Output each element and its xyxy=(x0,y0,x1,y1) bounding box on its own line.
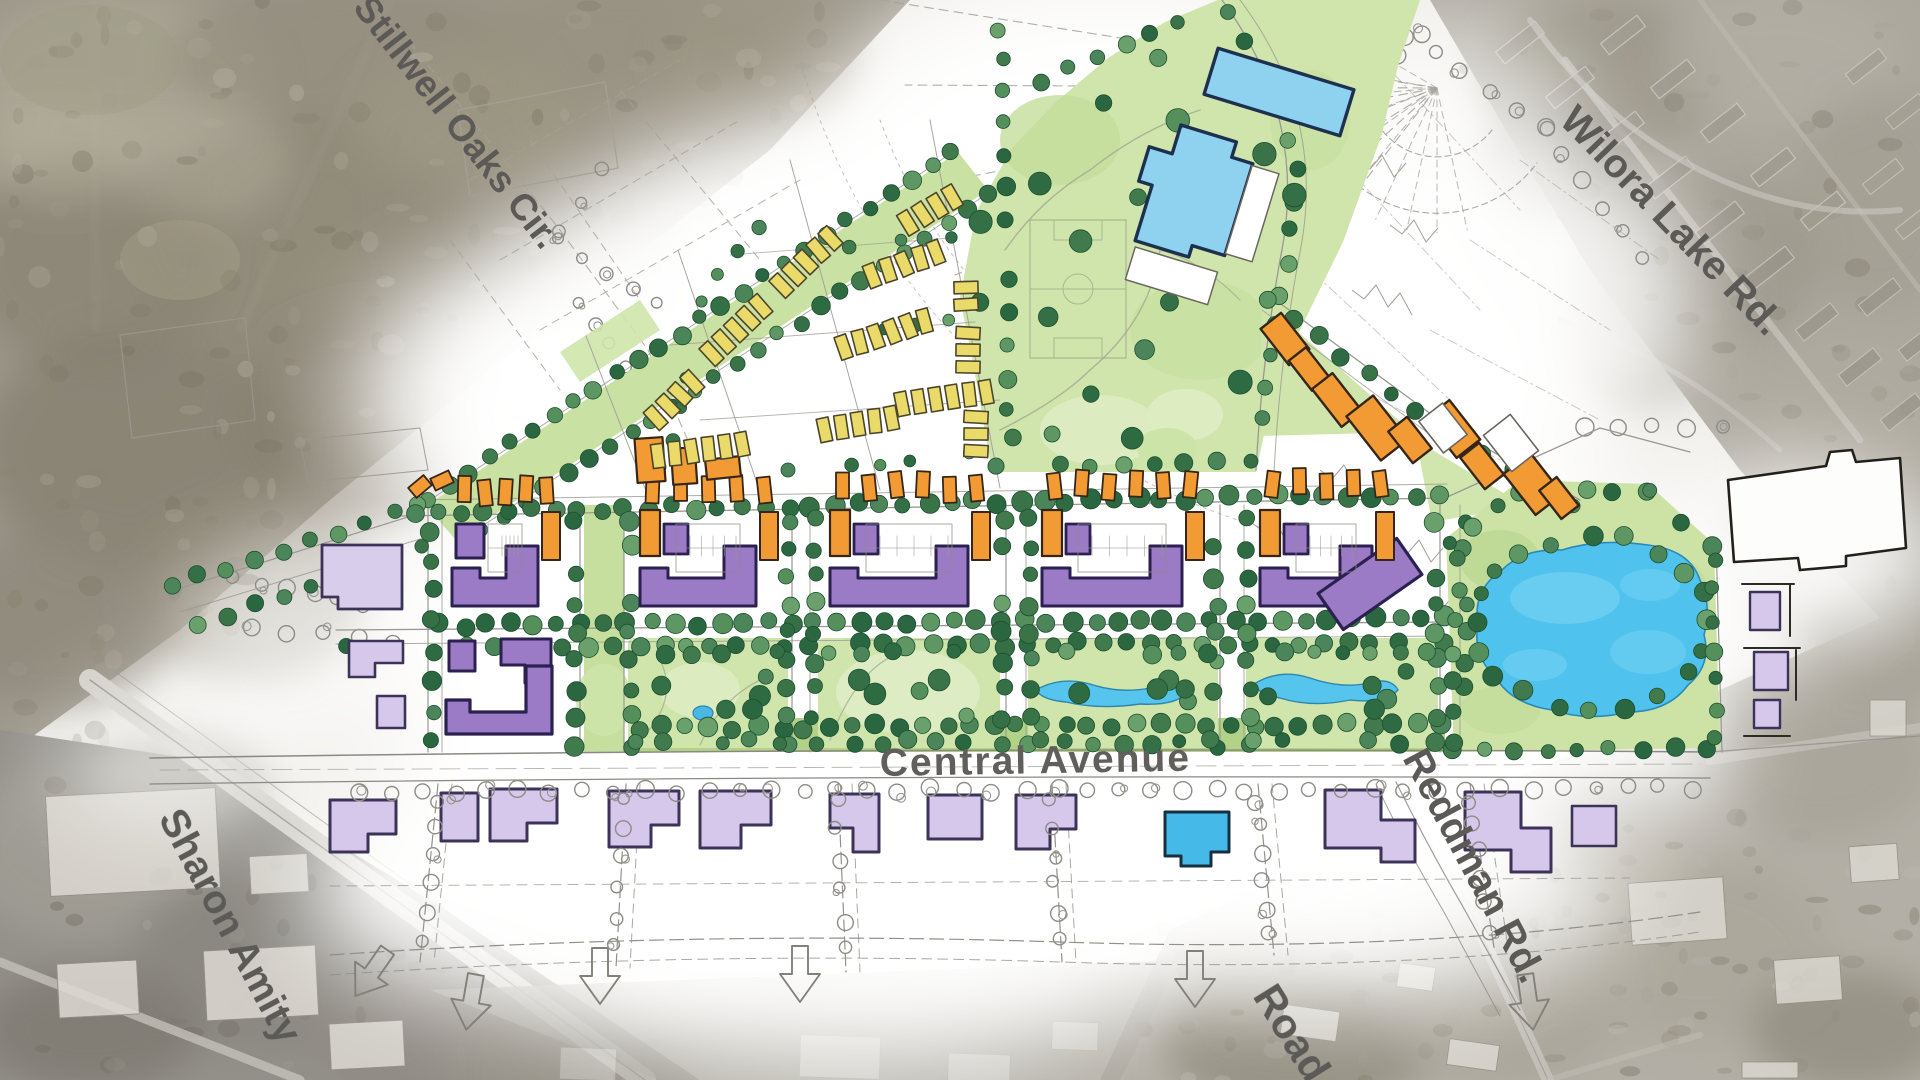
svg-text:Central Avenue: Central Avenue xyxy=(879,737,1191,785)
